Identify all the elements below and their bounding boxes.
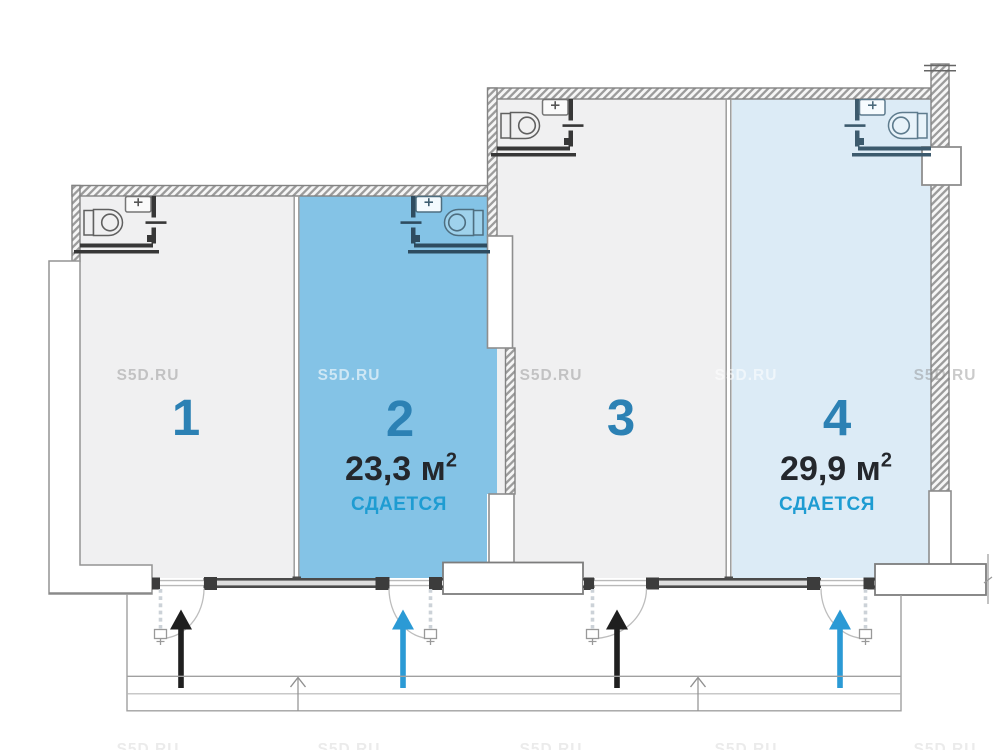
svg-text:СДАЕТСЯ: СДАЕТСЯ <box>779 494 875 515</box>
svg-text:S5D.RU: S5D.RU <box>914 741 977 750</box>
svg-text:S5D.RU: S5D.RU <box>715 741 778 750</box>
svg-text:S5D.RU: S5D.RU <box>318 367 381 384</box>
svg-text:1: 1 <box>172 389 200 446</box>
svg-text:S5D.RU: S5D.RU <box>914 367 977 384</box>
svg-text:S5D.RU: S5D.RU <box>520 367 583 384</box>
svg-text:S5D.RU: S5D.RU <box>318 741 381 750</box>
svg-text:23,3 м2: 23,3 м2 <box>345 450 457 489</box>
svg-text:S5D.RU: S5D.RU <box>715 367 778 384</box>
svg-text:S5D.RU: S5D.RU <box>117 741 180 750</box>
svg-text:29,9 м2: 29,9 м2 <box>780 450 892 489</box>
svg-text:S5D.RU: S5D.RU <box>520 741 583 750</box>
svg-text:4: 4 <box>823 389 852 446</box>
svg-text:СДАЕТСЯ: СДАЕТСЯ <box>351 494 447 515</box>
svg-text:2: 2 <box>386 390 414 447</box>
svg-text:S5D.RU: S5D.RU <box>117 367 180 384</box>
svg-text:3: 3 <box>607 389 635 446</box>
